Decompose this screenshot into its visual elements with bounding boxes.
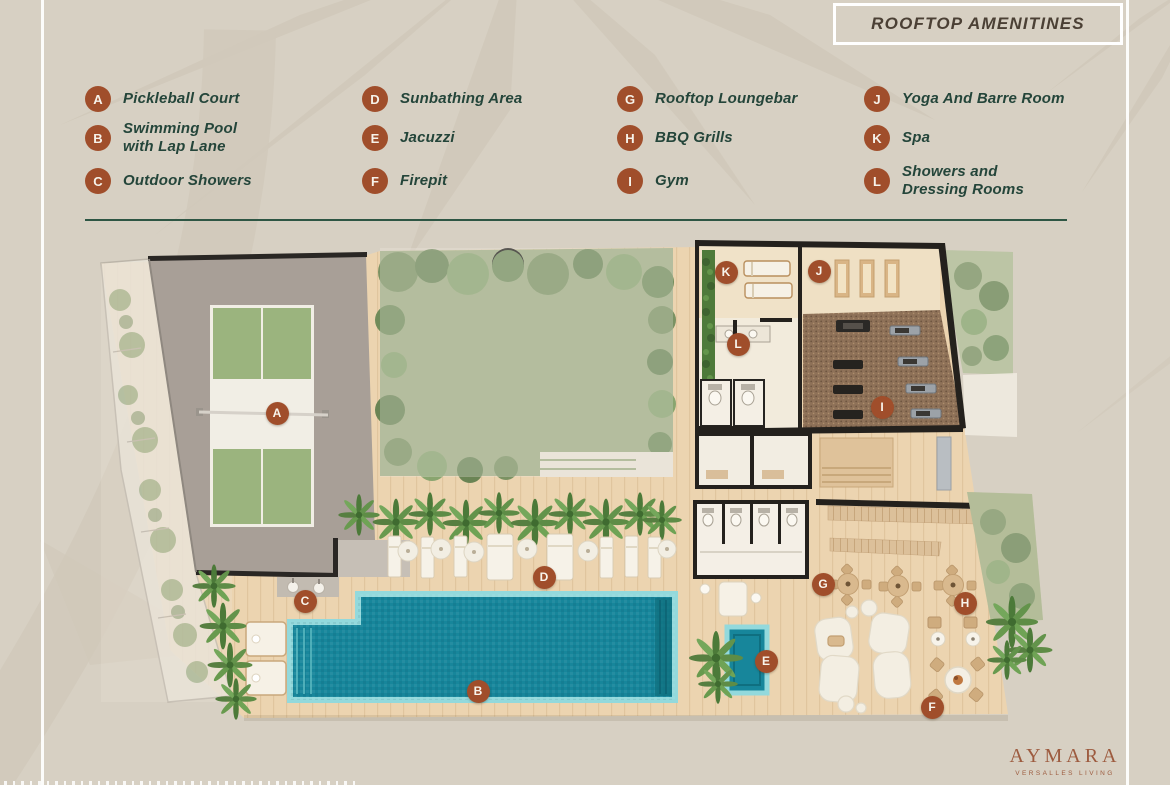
- legend-item-g: G Rooftop Loungebar: [617, 81, 798, 117]
- legend-item-f: F Firepit: [362, 163, 447, 199]
- legend-badge-e: E: [362, 125, 388, 151]
- legend-label-c: Outdoor Showers: [123, 172, 252, 190]
- cutoff-footer-text-fragment: [4, 781, 356, 785]
- brand-logo: AYMARA VERSALLES LIVING: [998, 745, 1132, 777]
- brand-tagline: VERSALLES LIVING: [998, 770, 1132, 777]
- legend-item-h: H BBQ Grills: [617, 120, 733, 156]
- legend-label-f: Firepit: [400, 172, 447, 190]
- rooftop-amenities-flyer: { "title": { "text": "ROOFTOP AMENITINES…: [0, 0, 1170, 785]
- right-frame-line: [1126, 0, 1129, 785]
- legend-badge-k: K: [864, 125, 890, 151]
- legend-label-l: Showers and Dressing Rooms: [902, 163, 1024, 199]
- legend-label-e: Jacuzzi: [400, 129, 455, 147]
- legend-item-i: I Gym: [617, 163, 689, 199]
- legend-label-a: Pickleball Court: [123, 90, 240, 108]
- legend-label-i: Gym: [655, 172, 689, 190]
- legend-divider: [85, 219, 1067, 221]
- marker-f: F: [921, 696, 944, 719]
- legend-badge-c: C: [85, 168, 111, 194]
- legend-badge-h: H: [617, 125, 643, 151]
- yoga-mats: [835, 260, 899, 297]
- marker-j: J: [808, 260, 831, 283]
- legend-badge-b: B: [85, 125, 111, 151]
- marker-k: K: [715, 261, 738, 284]
- legend-label-d: Sunbathing Area: [400, 90, 522, 108]
- legend-badge-d: D: [362, 86, 388, 112]
- legend-badge-f: F: [362, 168, 388, 194]
- marker-h: H: [954, 592, 977, 615]
- marker-d: D: [533, 566, 556, 589]
- pickleball-court: [196, 305, 329, 527]
- legend-badge-l: L: [864, 168, 890, 194]
- marker-g: G: [812, 573, 835, 596]
- marker-l: L: [727, 333, 750, 356]
- marker-a: A: [266, 402, 289, 425]
- legend-badge-a: A: [85, 86, 111, 112]
- legend-item-l: L Showers and Dressing Rooms: [864, 163, 1024, 199]
- legend-item-j: J Yoga And Barre Room: [864, 81, 1065, 117]
- rooftop-plan: [0, 0, 1170, 785]
- marker-c: C: [294, 590, 317, 613]
- pool-restrooms: [695, 502, 807, 577]
- legend-label-b: Swimming Pool with Lap Lane: [123, 120, 237, 156]
- legend-item-d: D Sunbathing Area: [362, 81, 522, 117]
- left-frame-line: [41, 0, 44, 785]
- legend-label-g: Rooftop Loungebar: [655, 90, 798, 108]
- legend-item-a: A Pickleball Court: [85, 81, 240, 117]
- legend-badge-g: G: [617, 86, 643, 112]
- page-title: ROOFTOP AMENITINES: [871, 14, 1085, 34]
- title-box: ROOFTOP AMENITINES: [833, 3, 1123, 45]
- legend-label-j: Yoga And Barre Room: [902, 90, 1065, 108]
- legend-item-k: K Spa: [864, 120, 930, 156]
- brand-name: AYMARA: [998, 745, 1132, 768]
- legend-badge-i: I: [617, 168, 643, 194]
- legend-item-b: B Swimming Pool with Lap Lane: [85, 120, 237, 156]
- marker-i: I: [871, 396, 894, 419]
- legend-item-c: C Outdoor Showers: [85, 163, 252, 199]
- garden: [375, 248, 676, 483]
- marker-e: E: [755, 650, 778, 673]
- legend-label-h: BBQ Grills: [655, 129, 733, 147]
- legend-badge-j: J: [864, 86, 890, 112]
- marker-b: B: [467, 680, 490, 703]
- legend-label-k: Spa: [902, 129, 930, 147]
- legend-item-e: E Jacuzzi: [362, 120, 455, 156]
